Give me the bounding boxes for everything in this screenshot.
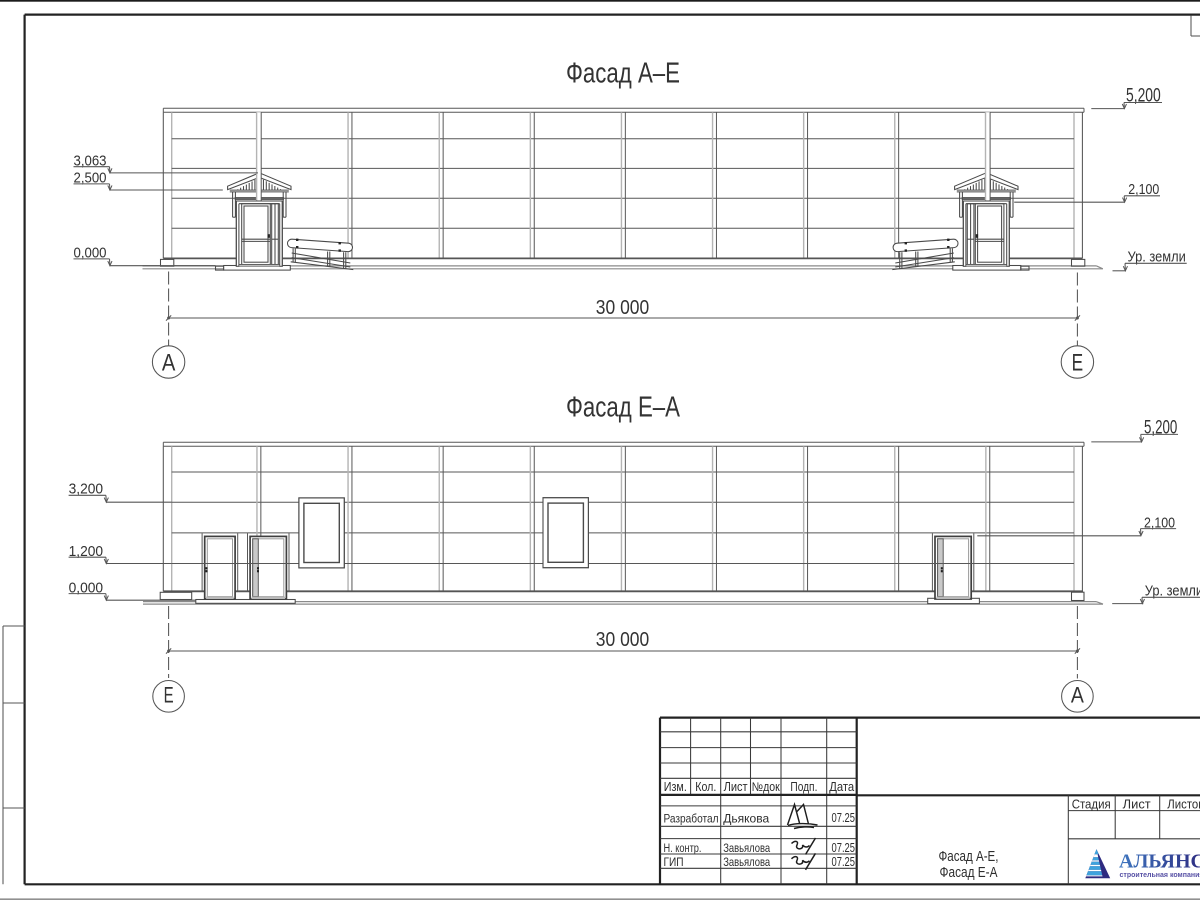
- svg-text:Завьялова: Завьялова: [723, 855, 770, 869]
- svg-text:Разработал: Разработал: [664, 811, 719, 825]
- svg-text:А: А: [1071, 683, 1084, 708]
- svg-text:Н. контр.: Н. контр.: [664, 841, 702, 855]
- svg-text:Завьялова: Завьялова: [723, 841, 770, 855]
- svg-text:07.25: 07.25: [832, 855, 856, 869]
- svg-text:№док: №док: [752, 780, 780, 794]
- svg-text:Дата: Дата: [829, 780, 854, 794]
- svg-text:АЛЬЯНС: АЛЬЯНС: [1119, 850, 1200, 872]
- svg-text:Е: Е: [1072, 350, 1084, 377]
- svg-text:5,200: 5,200: [1126, 85, 1161, 106]
- svg-text:А: А: [162, 350, 176, 377]
- svg-text:Лист: Лист: [1123, 798, 1151, 812]
- svg-text:Дьякова: Дьякова: [723, 811, 769, 825]
- svg-text:Фасад А–Е: Фасад А–Е: [566, 58, 680, 90]
- svg-text:Листов: Листов: [1167, 798, 1200, 812]
- svg-text:Фасад Е–А: Фасад Е–А: [566, 392, 680, 424]
- svg-text:строительная компания: строительная компания: [1120, 870, 1200, 879]
- svg-text:Фасад А-Е,: Фасад А-Е,: [939, 848, 999, 865]
- svg-text:Кол.: Кол.: [695, 780, 716, 794]
- svg-text:07.25: 07.25: [832, 811, 856, 825]
- svg-text:30 000: 30 000: [596, 628, 649, 651]
- svg-text:Е: Е: [164, 683, 174, 708]
- svg-text:Лист: Лист: [724, 780, 748, 794]
- svg-text:Фасад Е-А: Фасад Е-А: [940, 864, 998, 881]
- svg-text:Стадия: Стадия: [1072, 798, 1111, 812]
- svg-text:5,200: 5,200: [1144, 417, 1177, 438]
- svg-text:30 000: 30 000: [596, 296, 649, 319]
- svg-text:07.25: 07.25: [832, 841, 856, 855]
- svg-text:Подп.: Подп.: [790, 780, 817, 794]
- svg-text:ГИП: ГИП: [664, 855, 684, 869]
- svg-text:Изм.: Изм.: [664, 780, 687, 794]
